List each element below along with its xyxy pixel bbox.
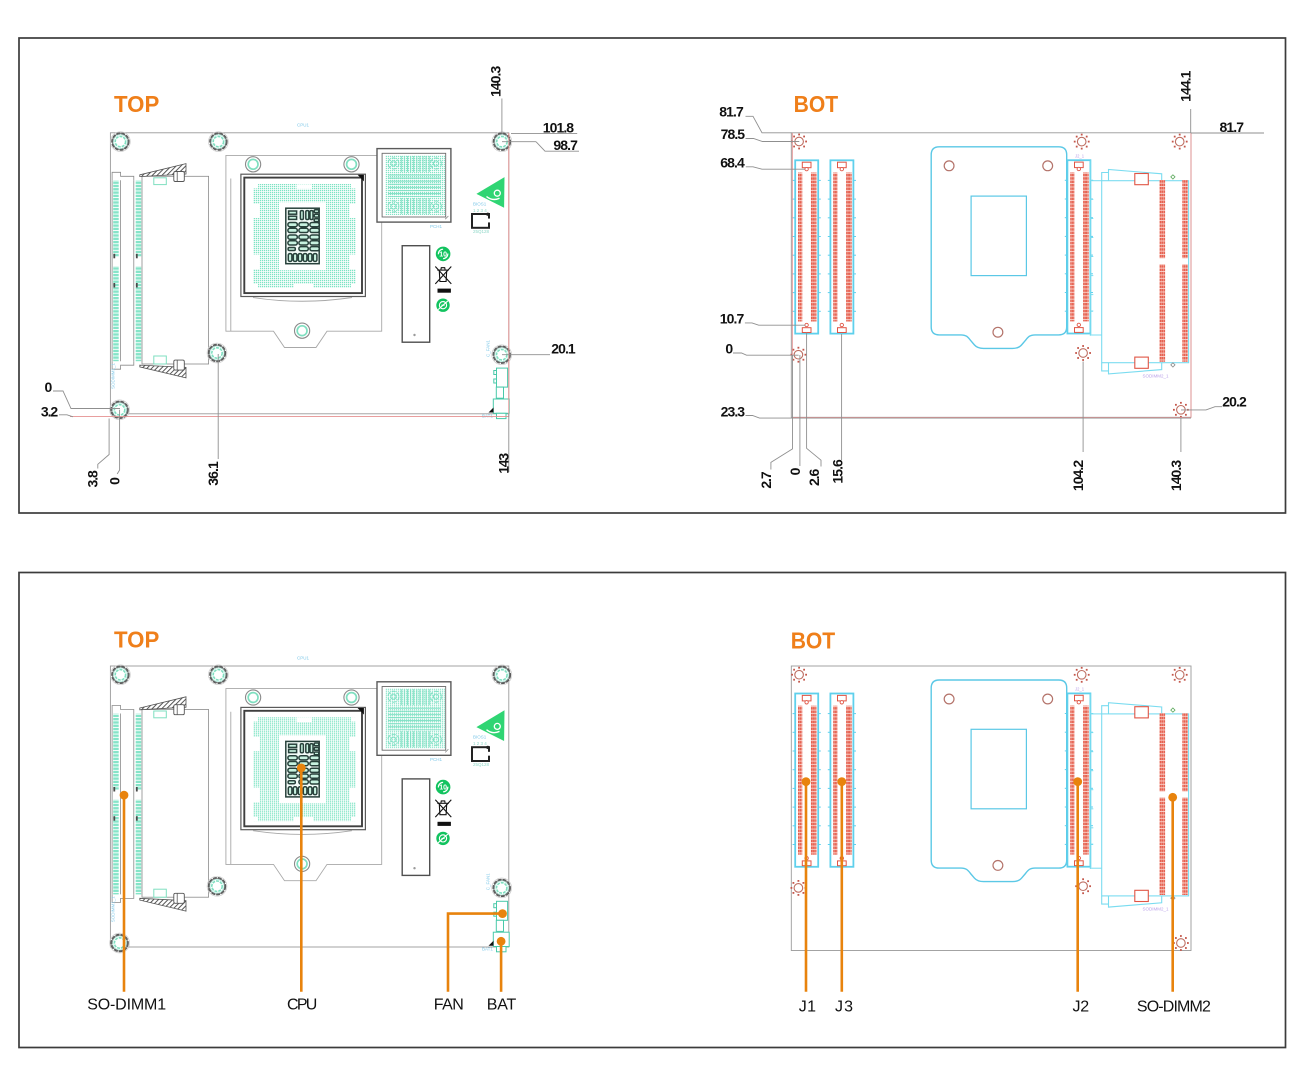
svg-text:25Q128: 25Q128	[473, 229, 490, 234]
svg-text:2.7: 2.7	[758, 471, 774, 489]
svg-text:J2_1: J2_1	[1075, 154, 1085, 159]
svg-text:101.8: 101.8	[543, 120, 575, 136]
svg-text:TOP: TOP	[114, 626, 159, 652]
svg-text:BOT: BOT	[791, 627, 836, 653]
svg-text:20.1: 20.1	[551, 341, 576, 357]
svg-text:SO-DIMM2: SO-DIMM2	[1137, 998, 1211, 1015]
svg-text:104.2: 104.2	[1070, 460, 1086, 492]
svg-text:BIOS1: BIOS1	[473, 202, 487, 207]
svg-text:3.8: 3.8	[85, 470, 101, 488]
svg-text:81.7: 81.7	[1220, 119, 1245, 135]
svg-text:0: 0	[106, 477, 122, 485]
svg-text:140.3: 140.3	[488, 66, 504, 98]
svg-text:78.5: 78.5	[721, 126, 746, 142]
svg-text:FAN: FAN	[434, 996, 464, 1013]
svg-text:0: 0	[45, 379, 53, 395]
svg-text:81.7: 81.7	[719, 104, 744, 120]
svg-text:3.2: 3.2	[41, 404, 59, 420]
svg-text:J2: J2	[1073, 998, 1090, 1015]
svg-text:SODIMM1_1: SODIMM1_1	[111, 362, 116, 389]
svg-text:68.4: 68.4	[720, 154, 745, 170]
svg-text:140.3: 140.3	[1168, 460, 1184, 492]
svg-text:TOP: TOP	[114, 91, 159, 117]
svg-text:J1: J1	[799, 998, 816, 1015]
svg-text:0: 0	[725, 341, 733, 357]
svg-text:SO-DIMM1: SO-DIMM1	[87, 996, 166, 1013]
svg-text:BAT1: BAT1	[482, 414, 493, 419]
svg-text:BOT: BOT	[794, 91, 839, 117]
svg-text:PCH1: PCH1	[430, 224, 443, 229]
svg-text:143: 143	[496, 453, 512, 474]
svg-text:10.7: 10.7	[720, 311, 745, 327]
svg-text:2.6: 2.6	[806, 469, 822, 487]
svg-text:23.3: 23.3	[721, 403, 746, 419]
svg-text:SODIMM2_1: SODIMM2_1	[1143, 374, 1170, 379]
svg-text:36.1: 36.1	[205, 461, 221, 486]
svg-text:0: 0	[787, 467, 803, 475]
svg-text:20.2: 20.2	[1222, 393, 1247, 409]
svg-text:C_FAN1: C_FAN1	[486, 339, 491, 357]
svg-text:1 2 3 4: 1 2 3 4	[473, 208, 487, 213]
svg-text:15.6: 15.6	[830, 459, 846, 484]
svg-text:144.1: 144.1	[1177, 70, 1193, 102]
svg-text:BAT: BAT	[487, 996, 517, 1013]
svg-text:CPU1: CPU1	[297, 123, 310, 128]
svg-text:CPU: CPU	[287, 996, 317, 1013]
svg-text:J3: J3	[835, 998, 853, 1015]
svg-text:98.7: 98.7	[553, 137, 578, 153]
